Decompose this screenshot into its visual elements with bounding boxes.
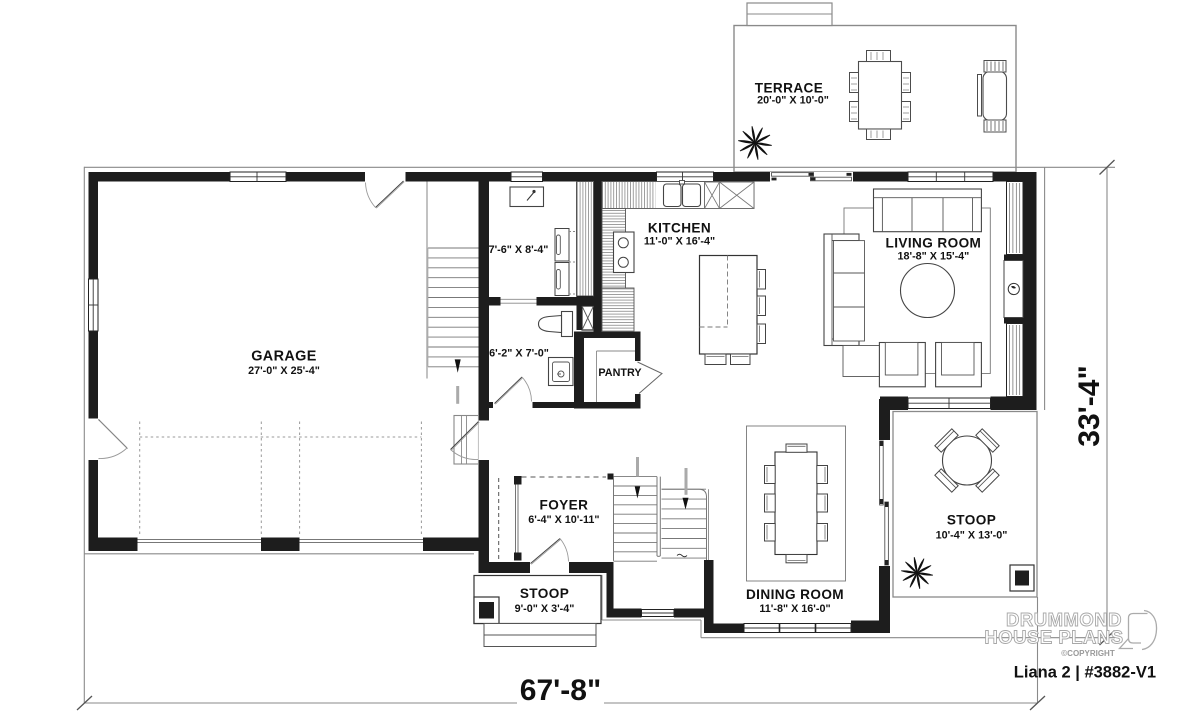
- svg-text:18'-8" X 15'-4": 18'-8" X 15'-4": [898, 251, 970, 263]
- svg-text:6'-2" X 7'-0": 6'-2" X 7'-0": [489, 348, 549, 360]
- svg-text:6'-4" X 10'-11": 6'-4" X 10'-11": [528, 514, 599, 526]
- svg-text:GARAGE: GARAGE: [251, 349, 317, 365]
- svg-text:HOUSE PLANS: HOUSE PLANS: [984, 627, 1123, 648]
- svg-text:67'-8": 67'-8": [520, 674, 601, 707]
- svg-text:KITCHEN: KITCHEN: [648, 221, 711, 236]
- svg-text:PANTRY: PANTRY: [598, 367, 642, 379]
- svg-text:©COPYRIGHT: ©COPYRIGHT: [1061, 649, 1115, 658]
- svg-text:FOYER: FOYER: [539, 497, 588, 512]
- svg-text:TERRACE: TERRACE: [755, 81, 824, 96]
- svg-text:27'-0" X 25'-4": 27'-0" X 25'-4": [248, 365, 320, 377]
- svg-text:10'-4" X 13'-0": 10'-4" X 13'-0": [936, 529, 1008, 541]
- svg-text:Liana 2 | #3882-V1: Liana 2 | #3882-V1: [1014, 664, 1156, 682]
- svg-text:11'-0" X 16'-4": 11'-0" X 16'-4": [644, 235, 715, 247]
- svg-text:DINING ROOM: DINING ROOM: [746, 587, 844, 602]
- svg-text:STOOP: STOOP: [520, 586, 569, 601]
- svg-text:20'-0" X 10'-0": 20'-0" X 10'-0": [757, 95, 829, 107]
- svg-text:33'-4": 33'-4": [1073, 365, 1106, 446]
- svg-text:STOOP: STOOP: [947, 513, 996, 528]
- svg-text:11'-8" X 16'-0": 11'-8" X 16'-0": [759, 603, 830, 615]
- svg-text:LIVING ROOM: LIVING ROOM: [886, 235, 982, 250]
- svg-text:7'-6" X 8'-4": 7'-6" X 8'-4": [489, 244, 549, 256]
- svg-text:9'-0" X 3'-4": 9'-0" X 3'-4": [515, 603, 575, 615]
